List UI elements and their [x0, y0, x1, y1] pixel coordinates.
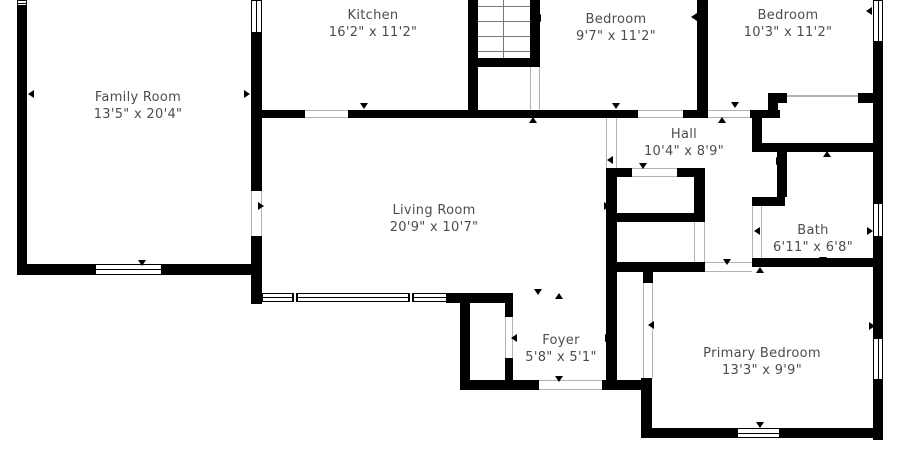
wall-segment — [446, 293, 513, 303]
room-dimensions: 9'7" x 11'2" — [576, 28, 656, 45]
window-pane-line — [878, 204, 879, 236]
window — [251, 0, 262, 33]
door-swing-marker-icon — [360, 103, 368, 109]
wall-segment — [752, 258, 875, 267]
room-label-family-room: Family Room13'5" x 20'4" — [94, 89, 183, 123]
door-opening — [539, 380, 602, 390]
room-dimensions: 13'5" x 20'4" — [94, 106, 183, 123]
window — [737, 428, 780, 438]
room-dimensions: 5'8" x 5'1" — [525, 349, 596, 366]
room-name: Family Room — [94, 89, 183, 106]
door-swing-marker-icon — [244, 90, 250, 98]
door-swing-marker-icon — [555, 376, 563, 382]
closet-opening-line — [787, 95, 858, 97]
wall-segment — [606, 168, 617, 383]
window-pane-line — [256, 1, 257, 32]
room-name: Primary Bedroom — [703, 345, 821, 362]
wall-segment — [643, 272, 653, 283]
room-label-primary-bedroom: Primary Bedroom13'3" x 9'9" — [703, 345, 821, 379]
room-label-bath: Bath6'11" x 6'8" — [773, 222, 853, 256]
wall-segment — [606, 262, 705, 272]
door-swing-marker-icon — [756, 422, 764, 428]
room-name: Hall — [644, 126, 724, 143]
room-dimensions: 20'9" x 10'7" — [390, 219, 479, 236]
floorplan-canvas: Family Room13'5" x 20'4"Kitchen16'2" x 1… — [0, 0, 900, 450]
wall-segment — [460, 293, 470, 390]
stair-tread — [478, 36, 530, 37]
wall-segment — [858, 93, 873, 103]
door-opening — [694, 222, 705, 262]
door-swing-marker-icon — [639, 163, 647, 169]
stair-tread — [478, 51, 530, 52]
door-swing-marker-icon — [718, 117, 726, 123]
window — [873, 203, 883, 237]
door-swing-marker-icon — [731, 102, 739, 108]
wall-segment — [17, 0, 27, 275]
door-swing-marker-icon — [698, 4, 706, 10]
wall-segment — [251, 236, 262, 304]
window-pane-line — [263, 297, 446, 298]
room-name: Bedroom — [576, 11, 656, 28]
window-mullion — [292, 293, 298, 302]
door-swing-marker-icon — [258, 202, 264, 210]
room-label-kitchen: Kitchen16'2" x 11'2" — [329, 7, 418, 41]
door-swing-marker-icon — [612, 103, 620, 109]
door-swing-marker-icon — [866, 7, 872, 15]
wall-segment — [752, 197, 785, 206]
room-label-bedroom-2: Bedroom10'3" x 11'2" — [744, 7, 833, 41]
door-swing-marker-icon — [555, 293, 563, 299]
door-swing-marker-icon — [535, 14, 541, 22]
room-name: Foyer — [525, 332, 596, 349]
wall-segment — [468, 58, 540, 67]
room-dimensions: 16'2" x 11'2" — [329, 24, 418, 41]
room-dimensions: 13'3" x 9'9" — [703, 362, 821, 379]
door-swing-marker-icon — [823, 151, 831, 157]
wall-segment — [262, 110, 305, 118]
door-opening — [638, 110, 683, 118]
wall-segment — [460, 380, 539, 390]
door-swing-marker-icon — [529, 117, 537, 123]
window-pane-line — [96, 269, 161, 270]
wall-segment — [478, 110, 638, 118]
stair-divider — [503, 0, 504, 58]
door-swing-marker-icon — [756, 267, 764, 273]
door-opening — [643, 283, 653, 378]
door-swing-marker-icon — [869, 322, 875, 330]
door-swing-marker-icon — [604, 202, 610, 210]
door-opening — [251, 191, 262, 236]
window-pane-line — [878, 339, 879, 379]
window-pane-line — [878, 1, 879, 41]
room-label-living-room: Living Room20'9" x 10'7" — [390, 202, 479, 236]
room-name: Bath — [773, 222, 853, 239]
wall-segment — [530, 0, 540, 60]
room-label-bedroom-1: Bedroom9'7" x 11'2" — [576, 11, 656, 45]
door-swing-marker-icon — [754, 227, 760, 235]
window-mullion — [408, 293, 414, 302]
door-swing-marker-icon — [691, 13, 697, 21]
door-opening — [632, 168, 677, 177]
wall-segment — [873, 42, 883, 203]
window-pane-line — [18, 3, 26, 4]
wall-segment — [697, 0, 708, 118]
door-swing-marker-icon — [819, 257, 827, 263]
door-swing-marker-icon — [605, 334, 611, 342]
door-swing-marker-icon — [511, 334, 517, 342]
door-opening — [708, 110, 750, 118]
stair-tread — [478, 21, 530, 22]
wall-segment — [505, 295, 513, 317]
wall-segment — [606, 213, 705, 222]
room-name: Bedroom — [744, 7, 833, 24]
window-pane-line — [738, 433, 779, 434]
wall-segment — [251, 33, 262, 191]
door-swing-marker-icon — [534, 289, 542, 295]
door-swing-marker-icon — [776, 157, 782, 165]
door-swing-marker-icon — [723, 259, 731, 265]
room-label-foyer: Foyer5'8" x 5'1" — [525, 332, 596, 366]
room-dimensions: 6'11" x 6'8" — [773, 239, 853, 256]
window — [17, 0, 27, 6]
door-opening — [530, 67, 540, 110]
window — [95, 264, 162, 275]
room-name: Living Room — [390, 202, 479, 219]
door-swing-marker-icon — [28, 90, 34, 98]
wall-segment — [752, 143, 883, 152]
door-swing-marker-icon — [138, 260, 146, 266]
wall-segment — [768, 93, 778, 118]
door-swing-marker-icon — [648, 321, 654, 329]
door-opening — [305, 110, 348, 118]
window — [873, 338, 883, 380]
stair-tread — [478, 6, 530, 7]
room-dimensions: 10'4" x 8'9" — [644, 143, 724, 160]
stairs — [478, 0, 530, 58]
wall-segment — [348, 110, 478, 118]
room-name: Kitchen — [329, 7, 418, 24]
room-dimensions: 10'3" x 11'2" — [744, 24, 833, 41]
room-label-hall: Hall10'4" x 8'9" — [644, 126, 724, 160]
window — [262, 293, 447, 302]
door-swing-marker-icon — [867, 227, 873, 235]
door-swing-marker-icon — [607, 156, 613, 164]
window — [873, 0, 883, 42]
